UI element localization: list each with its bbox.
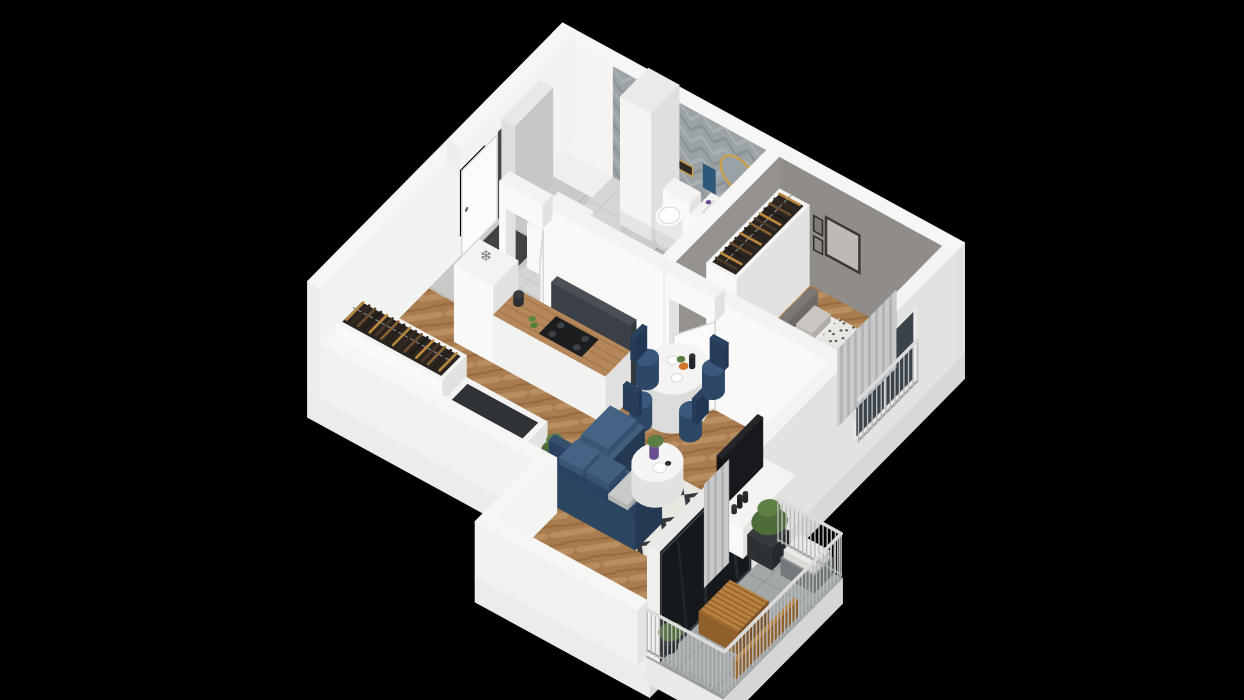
burner-3 bbox=[549, 331, 556, 337]
dinner-plate-2 bbox=[671, 374, 682, 383]
table-flowers-orange bbox=[679, 363, 688, 370]
green-apple-1 bbox=[529, 316, 536, 321]
coffee-cup bbox=[665, 461, 671, 465]
burner-1 bbox=[557, 323, 564, 329]
apartment-3d-floorplan-stage: ❄ bbox=[0, 0, 1244, 700]
apartment-3d-floorplan: ❄ bbox=[0, 0, 1244, 700]
burner-2 bbox=[582, 336, 589, 342]
green-apple-2 bbox=[531, 323, 538, 328]
kettle bbox=[514, 291, 524, 307]
svg-text:❄: ❄ bbox=[480, 247, 493, 265]
table-flowers-green bbox=[677, 356, 685, 362]
tv-candle-3 bbox=[732, 504, 737, 514]
dinner-plate-1 bbox=[667, 356, 678, 365]
coffee-table-tray bbox=[653, 463, 666, 473]
vanity-bottle-purple bbox=[706, 200, 711, 204]
wine-bottle bbox=[689, 354, 695, 369]
tv-candle-1 bbox=[743, 491, 748, 502]
vase-flowers bbox=[648, 435, 664, 447]
toilet-seat bbox=[659, 207, 680, 223]
freezer-snowflake-icon: ❄ bbox=[480, 247, 493, 265]
tv-candle-2 bbox=[737, 495, 742, 509]
burner-4 bbox=[573, 345, 580, 351]
